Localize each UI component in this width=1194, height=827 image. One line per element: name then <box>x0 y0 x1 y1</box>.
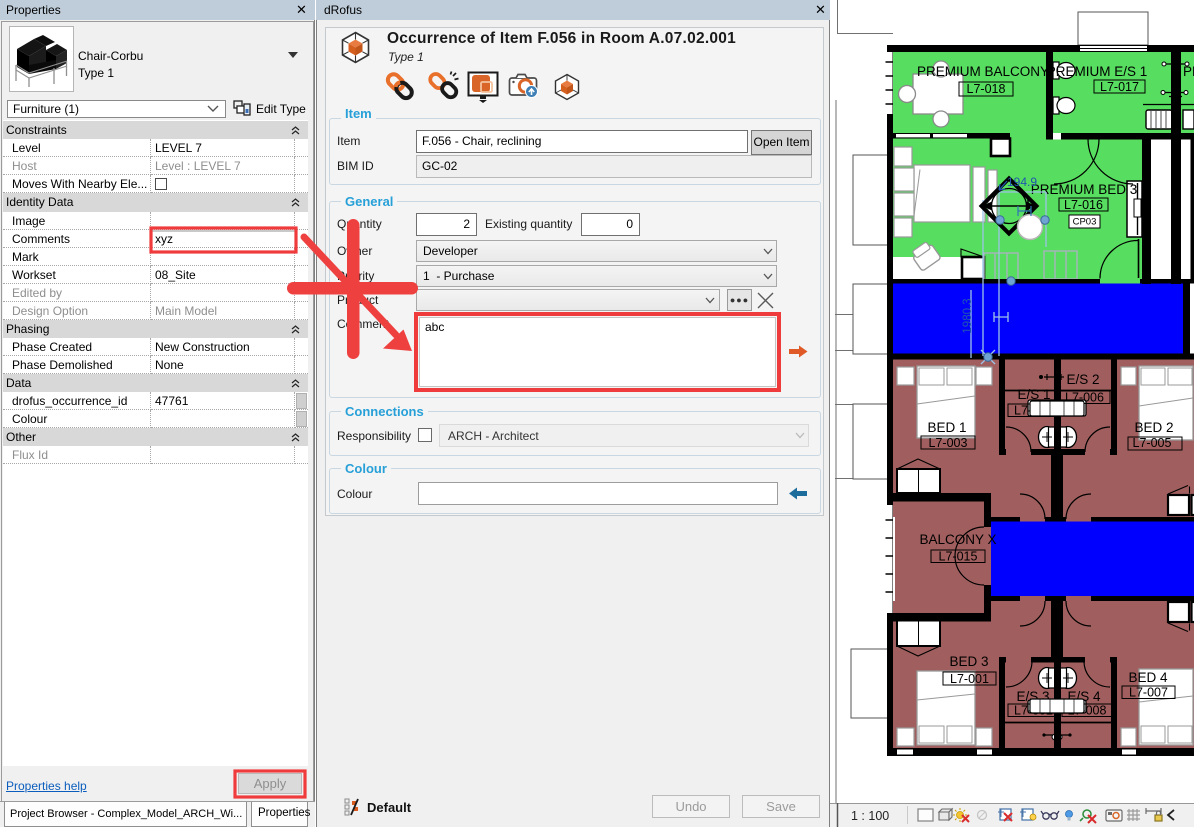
svg-text:L7-018: L7-018 <box>967 82 1006 96</box>
svg-text:L7-005: L7-005 <box>1133 436 1172 450</box>
svg-text:CP03: CP03 <box>1073 217 1097 228</box>
svg-text:PREMIUM BED 3: PREMIUM BED 3 <box>1031 182 1138 197</box>
svg-text:PREMIUM E/S 1: PREMIUM E/S 1 <box>1047 64 1148 79</box>
svg-text:L7-015: L7-015 <box>939 549 978 563</box>
svg-text:L7-001: L7-001 <box>950 672 989 686</box>
svg-text:BED 2: BED 2 <box>1134 420 1173 435</box>
svg-text:1980.3: 1980.3 <box>962 298 974 333</box>
svg-text:E/S 1: E/S 1 <box>1017 387 1050 402</box>
svg-text:PREMIUM BALCONY: PREMIUM BALCONY <box>917 64 1049 79</box>
svg-text:L7-017: L7-017 <box>1100 80 1139 94</box>
svg-text:194.9: 194.9 <box>1007 175 1037 189</box>
svg-text:BED 3: BED 3 <box>949 654 988 669</box>
svg-text:L7-016: L7-016 <box>1064 198 1103 212</box>
svg-text:E/S 2: E/S 2 <box>1066 372 1099 387</box>
svg-text:BED 4: BED 4 <box>1128 670 1168 685</box>
svg-text:BALCONY X: BALCONY X <box>919 532 996 547</box>
svg-text:L7-003: L7-003 <box>929 436 968 450</box>
svg-text:1 : 100: 1 : 100 <box>851 809 889 823</box>
svg-text:L7-007: L7-007 <box>1129 685 1168 699</box>
svg-text:BED 1: BED 1 <box>927 420 966 435</box>
svg-text:PREM: PREM <box>1183 64 1194 79</box>
